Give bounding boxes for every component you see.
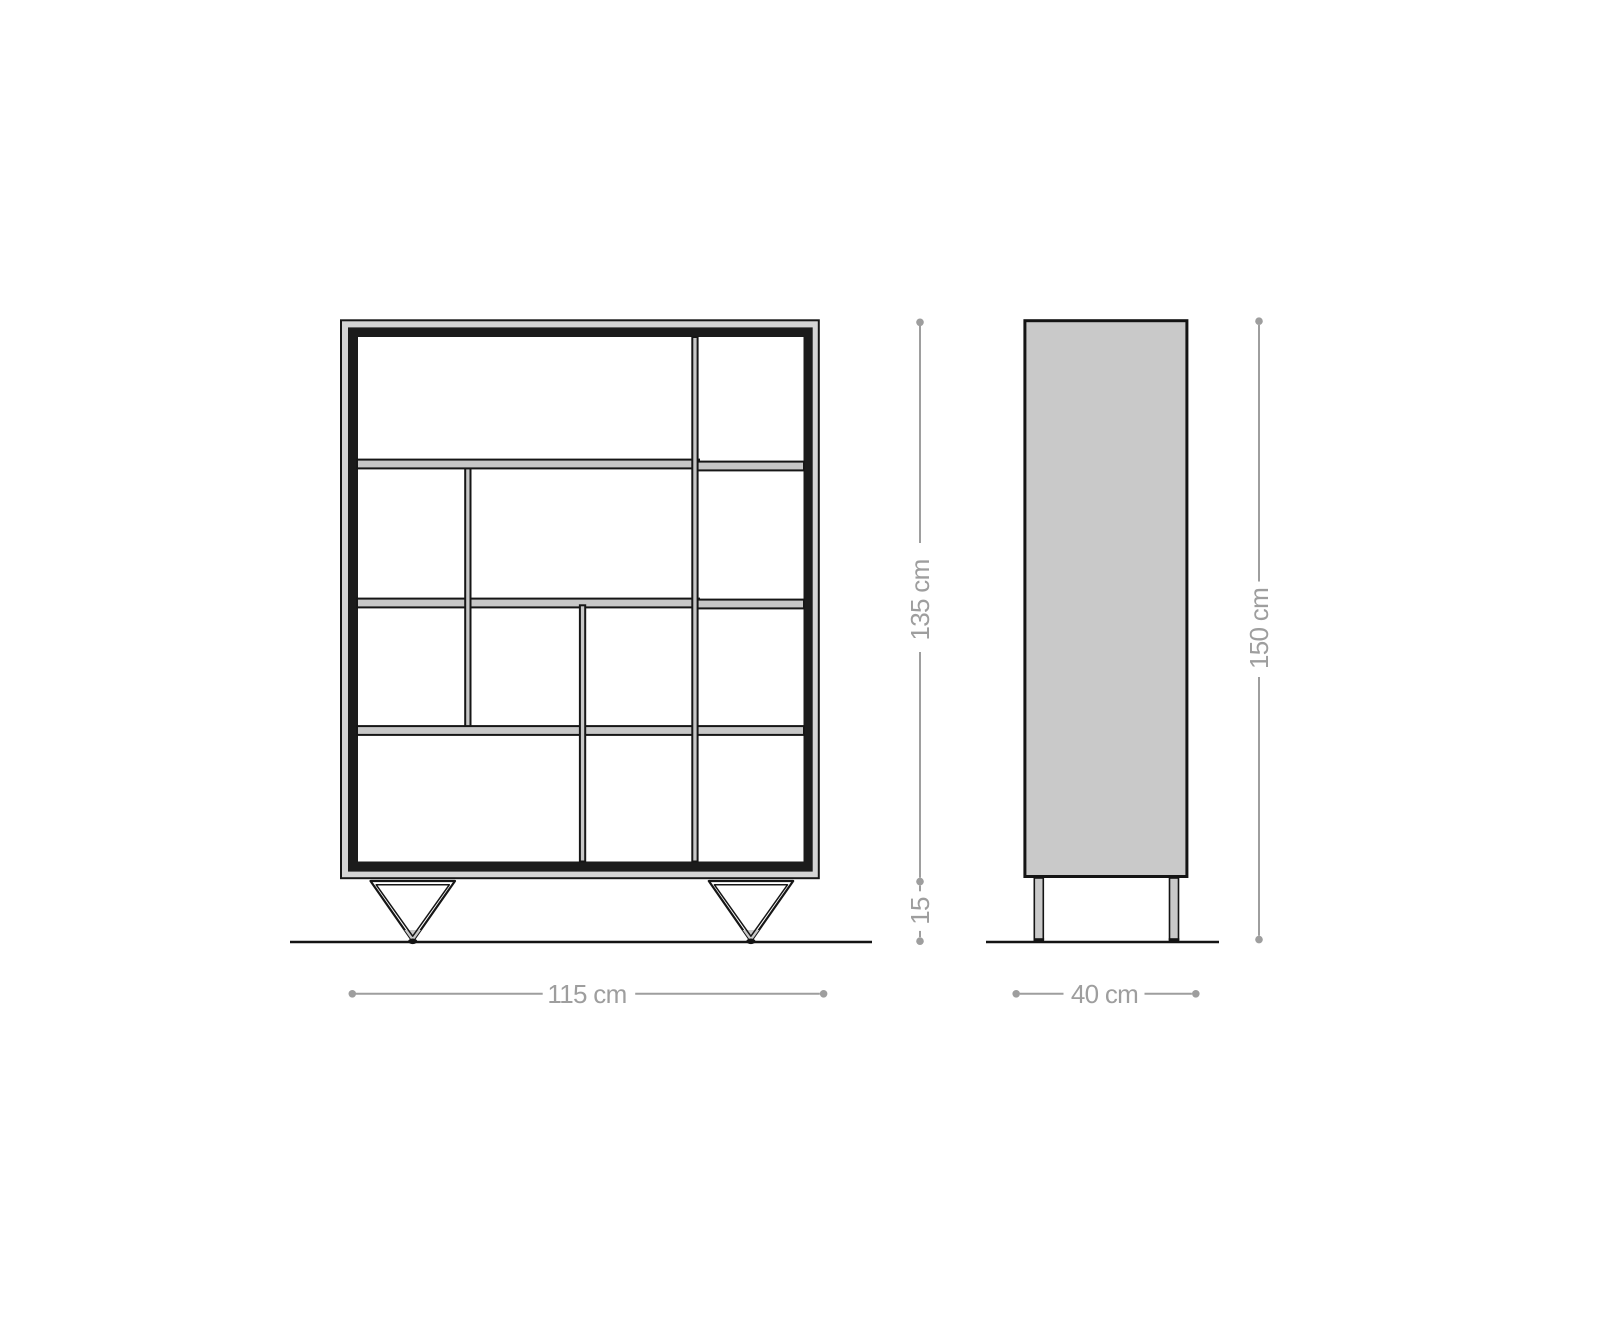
svg-text:40 cm: 40 cm xyxy=(1071,979,1138,1009)
svg-text:115 cm: 115 cm xyxy=(547,979,626,1009)
svg-text:150 cm: 150 cm xyxy=(1244,588,1274,669)
svg-text:15: 15 xyxy=(905,897,935,925)
svg-text:135 cm: 135 cm xyxy=(905,559,935,640)
